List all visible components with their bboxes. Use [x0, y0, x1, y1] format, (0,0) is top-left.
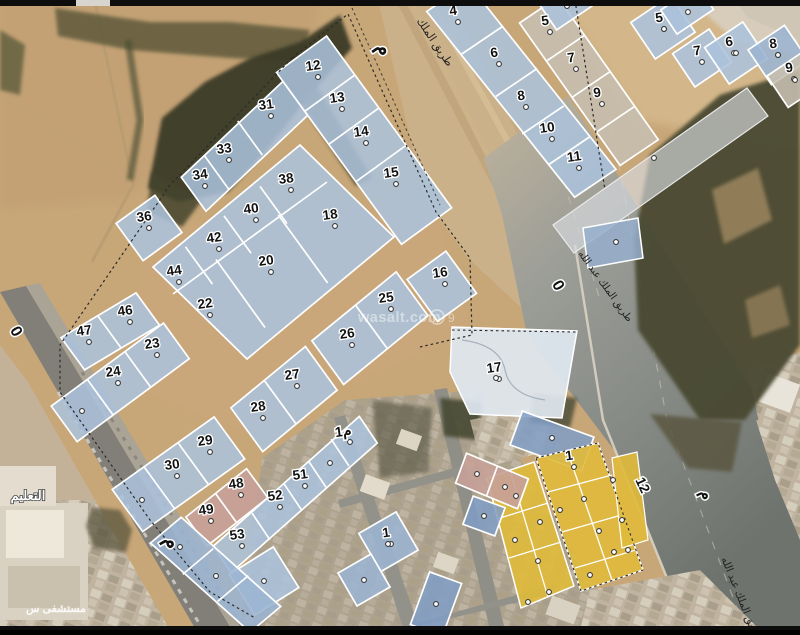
svg-text:36: 36	[136, 208, 153, 225]
svg-text:28: 28	[250, 398, 267, 415]
svg-text:مستشفى س: مستشفى س	[26, 603, 86, 615]
svg-text:24: 24	[105, 363, 122, 380]
svg-text:22: 22	[197, 295, 214, 312]
svg-text:27: 27	[284, 366, 301, 383]
svg-text:26: 26	[339, 325, 356, 342]
svg-text:40: 40	[243, 200, 260, 217]
svg-text:48: 48	[228, 475, 245, 492]
svg-text:23: 23	[144, 335, 161, 352]
svg-text:52: 52	[267, 487, 284, 504]
svg-text:التعليم: التعليم	[11, 488, 46, 504]
svg-text:13: 13	[329, 89, 346, 106]
svg-text:44: 44	[166, 262, 183, 279]
svg-text:17: 17	[486, 359, 503, 376]
svg-text:31: 31	[258, 96, 275, 113]
svg-text:33: 33	[216, 140, 233, 157]
svg-text:49: 49	[198, 501, 215, 518]
svg-text:53: 53	[229, 526, 246, 543]
svg-text:16: 16	[432, 264, 449, 281]
svg-text:wasalt.com: wasalt.com	[357, 310, 441, 326]
svg-text:30: 30	[164, 456, 181, 473]
svg-text:15: 15	[383, 164, 400, 181]
svg-text:47: 47	[76, 322, 93, 339]
svg-text:38: 38	[278, 170, 295, 187]
svg-text:12: 12	[305, 57, 322, 74]
svg-text:34: 34	[192, 166, 209, 183]
svg-text:9: 9	[448, 311, 455, 325]
svg-text:11: 11	[566, 148, 583, 165]
svg-text:14: 14	[353, 123, 370, 140]
svg-text:46: 46	[117, 302, 134, 319]
svg-text:25: 25	[378, 289, 395, 306]
svg-text:42: 42	[206, 229, 223, 246]
svg-text:51: 51	[292, 466, 309, 483]
svg-text:29: 29	[197, 432, 214, 449]
svg-text:20: 20	[258, 252, 275, 269]
svg-text:10: 10	[539, 119, 556, 136]
svg-text:18: 18	[322, 206, 339, 223]
